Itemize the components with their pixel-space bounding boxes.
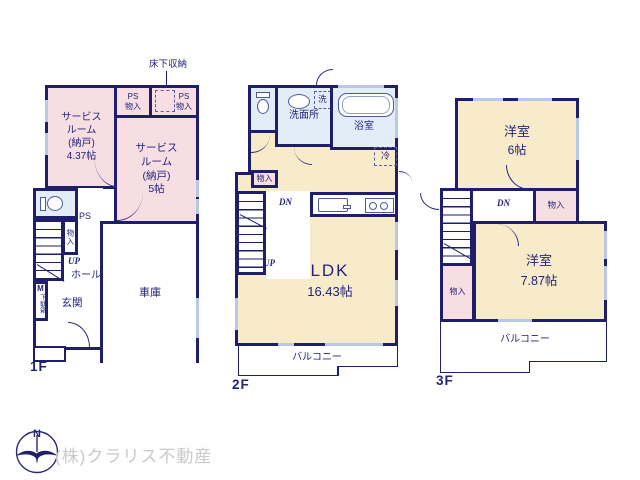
f2-burner-1-icon xyxy=(369,202,377,210)
f2-closet-label: 物入 xyxy=(257,174,273,184)
f2-balcony-label: バルコニー xyxy=(272,352,362,365)
f3-room787-label: 洋室 xyxy=(509,253,569,270)
f2-bathtub-inner-icon xyxy=(342,96,390,114)
f2-floor-label: 2F xyxy=(232,377,250,392)
f2-window-ldk-right-1 xyxy=(395,222,398,250)
f1-garage-label: 車庫 xyxy=(128,286,172,300)
f2-toilet-bowl-icon xyxy=(257,99,269,114)
f3-closet-upper: 物入 xyxy=(533,188,579,224)
f2-stairs xyxy=(236,191,266,275)
f2-side-door-arc xyxy=(399,171,412,182)
f2-dn-label: DN xyxy=(279,197,292,209)
f1-toilet-room xyxy=(33,188,78,219)
f2-ldk-size-label: 16.43帖 xyxy=(290,284,370,301)
f3-room787-size-label: 7.87帖 xyxy=(505,273,573,289)
compass-north-label: N xyxy=(33,428,41,440)
f1-stairs-winder-line xyxy=(37,264,65,282)
f1-toilet-bowl-icon xyxy=(47,196,63,211)
f1-ps-right-labels: PS 物入 xyxy=(173,88,195,115)
f1-window-left-1 xyxy=(45,100,48,122)
f3-window-room787-bottom xyxy=(498,319,532,322)
f1-under-floor-storage-box xyxy=(155,90,175,112)
f3-balcony-label: バルコニー xyxy=(480,334,570,347)
f1-shoe-cabinet-m: M xyxy=(36,284,45,294)
f3-western-room-787 xyxy=(473,221,607,322)
f3-room6-label: 洋室 xyxy=(487,124,547,141)
f2-sink-icon xyxy=(288,94,310,109)
f2-closet: 物入 xyxy=(251,170,278,188)
f1-ps-closet-right: PS 物入 xyxy=(149,85,199,118)
f1-window-right-2 xyxy=(196,199,199,214)
f2-up-label: UP xyxy=(263,258,275,270)
f2-laundry-label: 洗 xyxy=(314,94,331,105)
f1-window-garage xyxy=(196,298,199,338)
f1-window-right-1 xyxy=(196,180,199,197)
f2-window-balcony-1 xyxy=(278,343,294,346)
f2-washroom-label: 洗面所 xyxy=(277,110,331,123)
f3-window-room6-right xyxy=(576,118,579,160)
f1-closet-cell-label: 物入 xyxy=(65,229,75,246)
f1-ps-right-label: PS xyxy=(179,92,190,102)
f2-toilet-room xyxy=(248,85,278,133)
f3-balcony-left xyxy=(440,322,530,373)
f2-fridge-label: 冷 xyxy=(374,151,397,163)
f2-window-ldk-right-2 xyxy=(395,280,398,306)
f2-window-bath-right xyxy=(395,98,398,138)
f3-floor-label: 3F xyxy=(436,373,454,388)
f3-room6-size-label: 6帖 xyxy=(487,143,547,158)
f3-window-room787-right-1 xyxy=(604,231,607,259)
f1-up-label: UP xyxy=(68,256,80,268)
f1-window-left-2 xyxy=(45,133,48,155)
f1-closet-left-label: 物入 xyxy=(125,102,141,112)
f2-window-bath-top xyxy=(338,85,384,88)
f1-ps-closet-left: PS 物入 xyxy=(114,85,152,118)
f2-kitchen-faucet-icon xyxy=(343,205,351,209)
f2-window-ldk-left xyxy=(235,298,238,330)
f2-balcony-step-line xyxy=(337,366,339,376)
f2-bathroom-label: 浴室 xyxy=(339,121,389,134)
f2-window-balcony-2 xyxy=(325,343,383,346)
f2-bathroom xyxy=(330,85,398,150)
f2-kitchen-counter xyxy=(310,192,398,217)
f3-window-room6-top-2 xyxy=(518,98,552,101)
f3-exterior-door-arc xyxy=(420,193,439,210)
f3-closet-upper-label: 物入 xyxy=(547,200,564,211)
f3-dn-label: DN xyxy=(497,198,510,210)
floorplan-canvas: 床下収納 サービス ルーム (納戸) 4.37帖 PS 物入 PS 物入 サービ… xyxy=(0,0,640,480)
f3-window-room787-right-2 xyxy=(604,266,607,300)
brand-text: (株)クラリス不動産 xyxy=(55,446,255,468)
f1-ps-small-label: PS xyxy=(79,211,91,223)
f1-stairs xyxy=(33,219,64,281)
f2-stairs-winder-line xyxy=(240,214,267,229)
f2-exterior-door-arc xyxy=(316,69,333,85)
f3-balcony-step-line xyxy=(529,361,531,373)
f3-stairs xyxy=(440,188,473,266)
f3-closet-lower: 物入 xyxy=(440,263,475,322)
f2-ldk-label: LDK xyxy=(290,260,370,282)
f3-window-room6-top-1 xyxy=(473,98,503,101)
f1-shoe-cabinet-label: 下駄箱 xyxy=(37,294,45,314)
f1-ps-left-label: PS xyxy=(128,92,139,102)
f1-shoe-cabinet: M 下駄箱 xyxy=(33,281,48,321)
f2-burner-2-icon xyxy=(380,202,388,210)
f1-floor-label: 1F xyxy=(30,359,48,374)
f2-stove-icon xyxy=(365,198,394,213)
f2-toilet-tank-icon xyxy=(256,92,270,98)
f1-closet-right-label: 物入 xyxy=(176,102,192,112)
f1-toilet-tank-icon xyxy=(40,197,46,211)
f1-entrance-label: 玄関 xyxy=(52,297,92,310)
f1-closet-cell: 物入 xyxy=(62,219,78,255)
f3-stairs-winder-line xyxy=(444,243,472,260)
f3-closet-lower-label: 物入 xyxy=(450,287,466,297)
f1-under-floor-storage-label: 床下収納 xyxy=(134,59,202,71)
f1-service-room-b-label: サービス ルーム (納戸) 5帖 xyxy=(136,142,178,197)
